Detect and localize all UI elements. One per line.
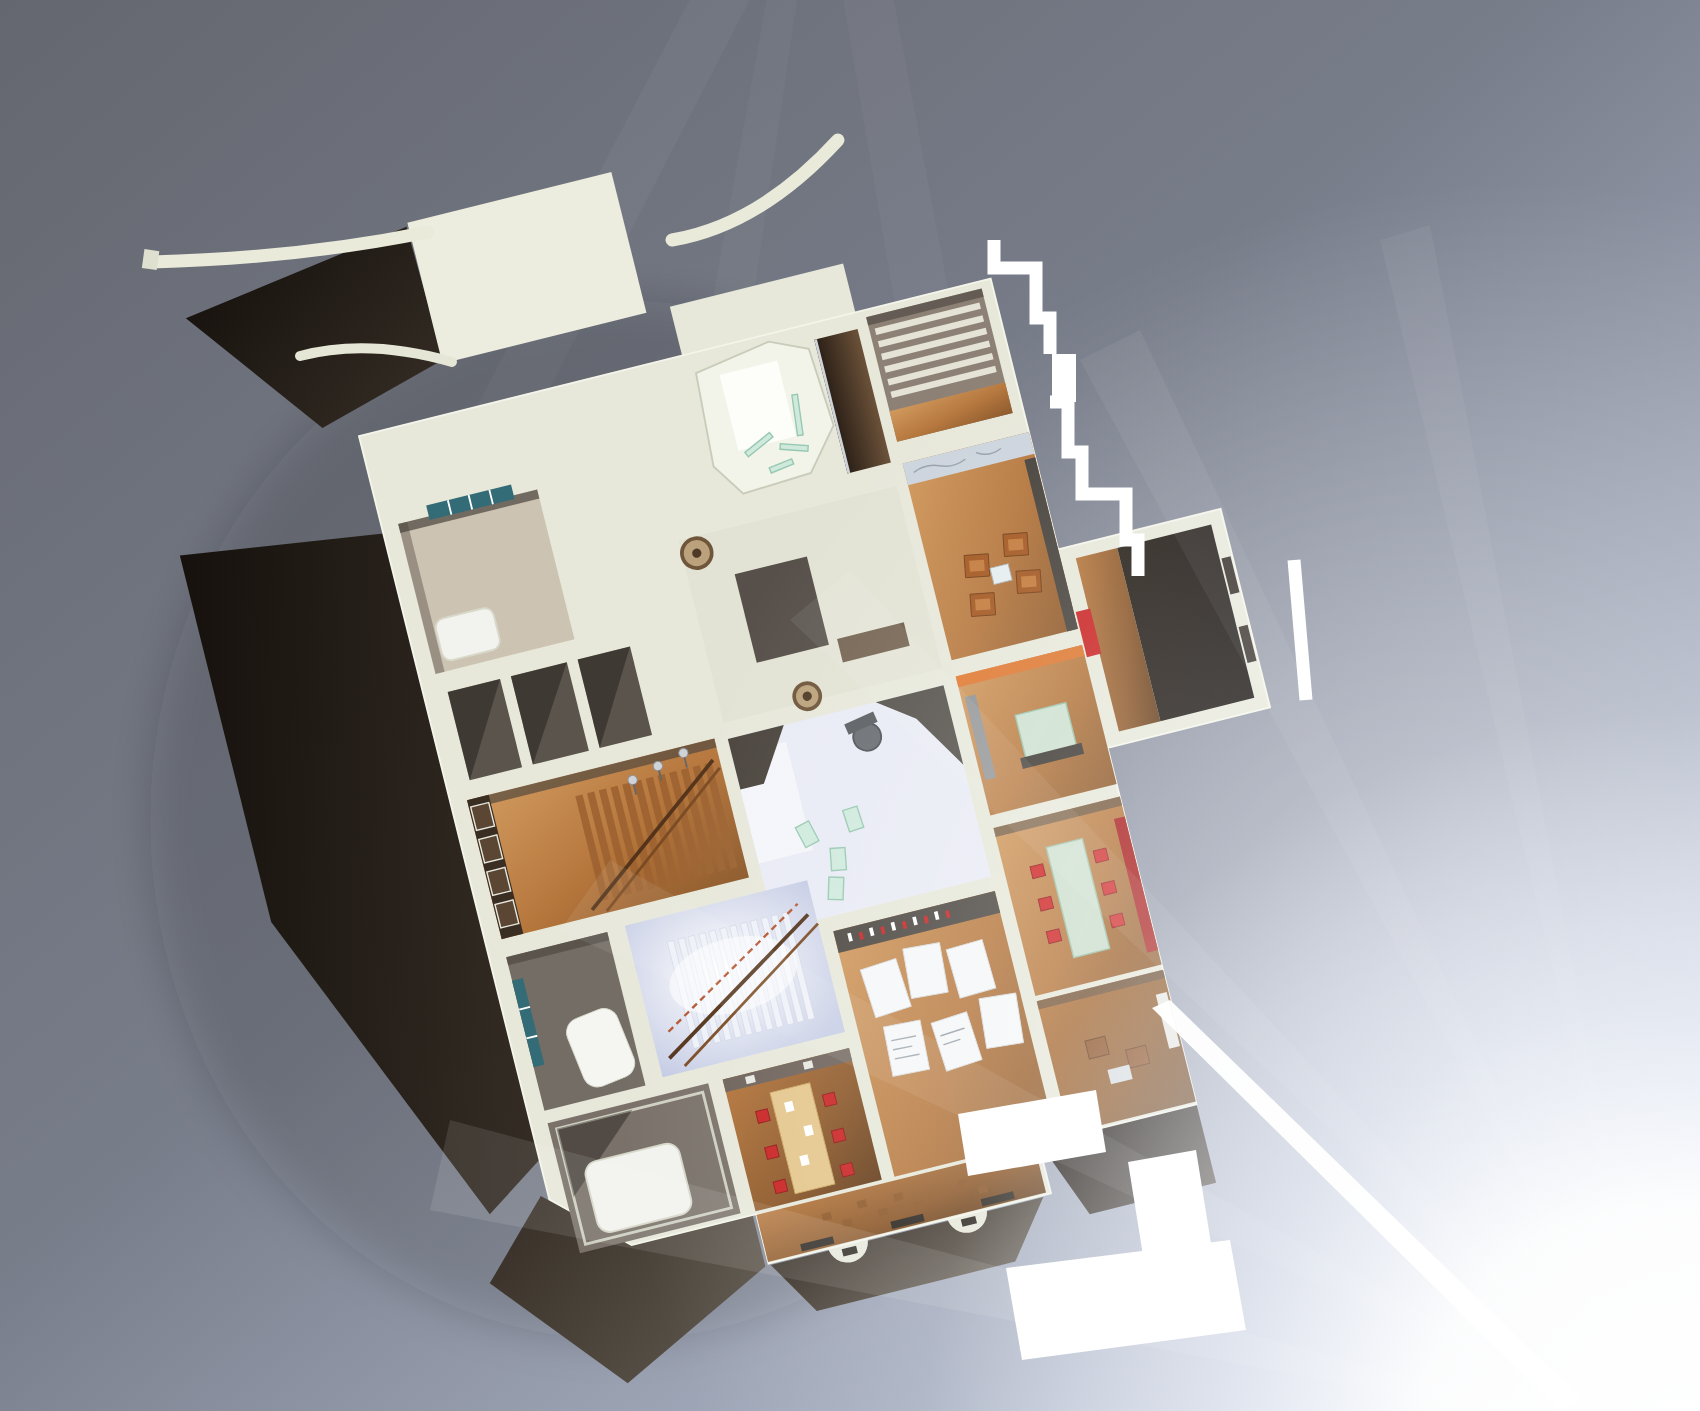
scene-render <box>0 0 1700 1411</box>
floorplan-svg <box>0 0 1700 1411</box>
canopy-left-endcap <box>142 249 159 270</box>
